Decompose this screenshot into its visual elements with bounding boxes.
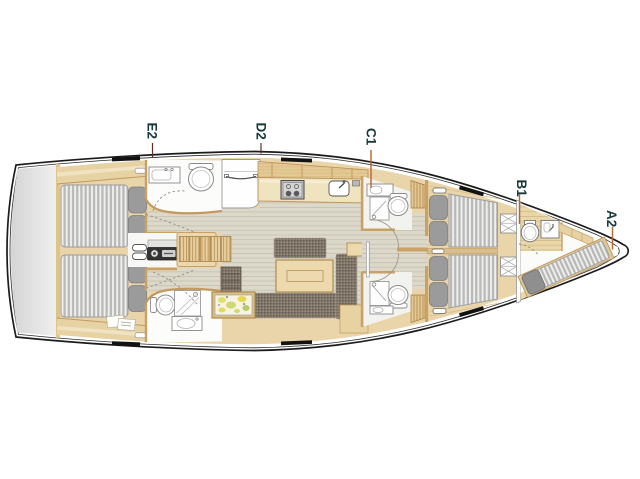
svg-text:E2: E2	[145, 123, 160, 140]
svg-text:B1: B1	[514, 180, 529, 198]
svg-text:C1: C1	[364, 128, 379, 146]
svg-text:D2: D2	[254, 123, 269, 140]
svg-text:A2: A2	[604, 210, 619, 227]
